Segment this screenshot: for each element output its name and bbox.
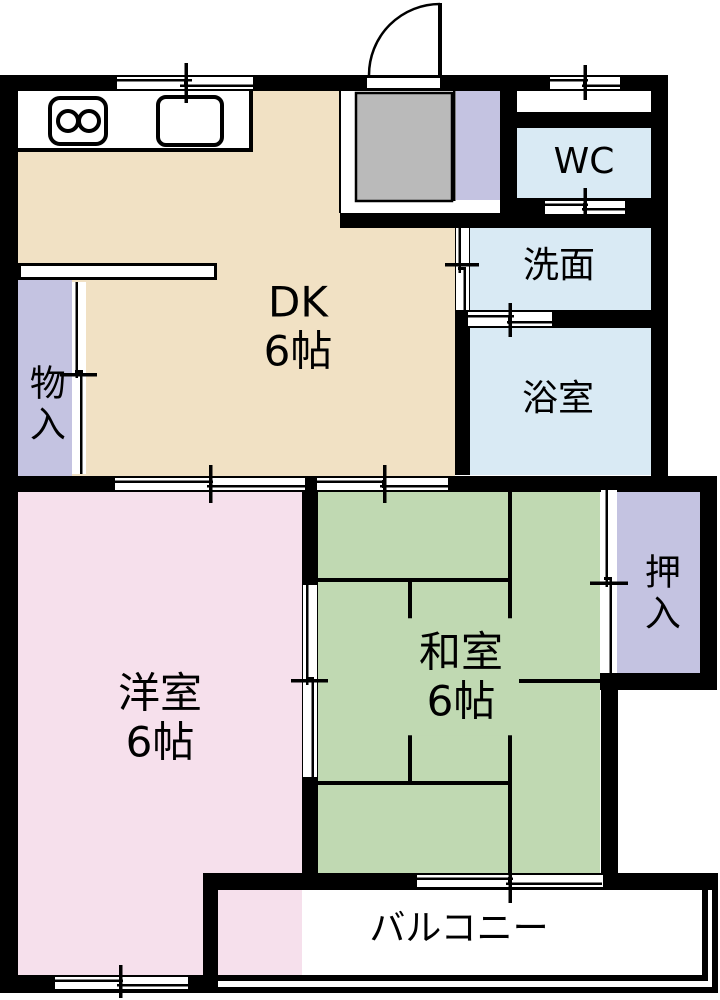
dk-name: DK <box>264 278 333 327</box>
genkan-area <box>339 91 500 213</box>
counter-edge-bottom <box>18 148 253 152</box>
washitsu-label: 和室 6帖 <box>403 618 519 735</box>
kitchen-bar-counter <box>20 265 216 279</box>
entry-door-leaf <box>438 3 442 76</box>
wall-oshiire-bottom <box>600 673 717 690</box>
balcony-rail-outer-bottom <box>218 987 718 993</box>
counter-edge-right <box>249 91 253 152</box>
washitsu-size: 6帖 <box>419 677 503 726</box>
wall-left <box>0 75 18 993</box>
dk-size: 6帖 <box>264 327 333 376</box>
wc-label: WC <box>554 141 615 183</box>
wall-genkan-right <box>500 91 517 228</box>
wall-oshiire-right <box>700 476 717 690</box>
balcony-rail-outer-right <box>712 873 718 993</box>
wall-below-genkan <box>340 213 517 228</box>
youshitsu-size: 6帖 <box>118 718 202 767</box>
genkan-hall-edge <box>339 91 341 213</box>
entry-door-swing-icon <box>367 3 442 90</box>
oshiire-label: 押入 <box>638 553 680 635</box>
youshitsu-name: 洋室 <box>118 669 202 718</box>
entry-door-arc <box>369 4 440 75</box>
washitsu-name: 和室 <box>419 628 503 677</box>
wall-washitsu-right <box>601 673 618 890</box>
kitchen-counter <box>18 91 253 152</box>
shoe-cabinet <box>456 91 500 200</box>
dk-label: DK 6帖 <box>264 278 333 375</box>
yokushitsu-label: 浴室 <box>522 378 594 420</box>
genkan-divider <box>453 91 456 201</box>
genkan-step <box>356 93 452 201</box>
balcony-label: バルコニー <box>369 908 548 950</box>
stove-icon <box>50 98 106 144</box>
wall-right-upper <box>651 75 668 478</box>
balcony-rail-inner-right <box>702 890 708 981</box>
wall-youshitsu-right-lower <box>203 873 218 975</box>
wall-yokushitsu-left <box>455 328 470 475</box>
floor-plan: DK 6帖 洋室 6帖 和室 6帖 WC 洗面 浴室 物入 押入 バルコニー <box>0 0 720 1000</box>
monoire-label: 物入 <box>23 364 65 446</box>
youshitsu-label: 洋室 6帖 <box>118 669 202 766</box>
senmen-label: 洗面 <box>523 245 595 287</box>
balcony-rail-inner-bottom <box>218 975 708 981</box>
sink-icon <box>158 97 222 145</box>
